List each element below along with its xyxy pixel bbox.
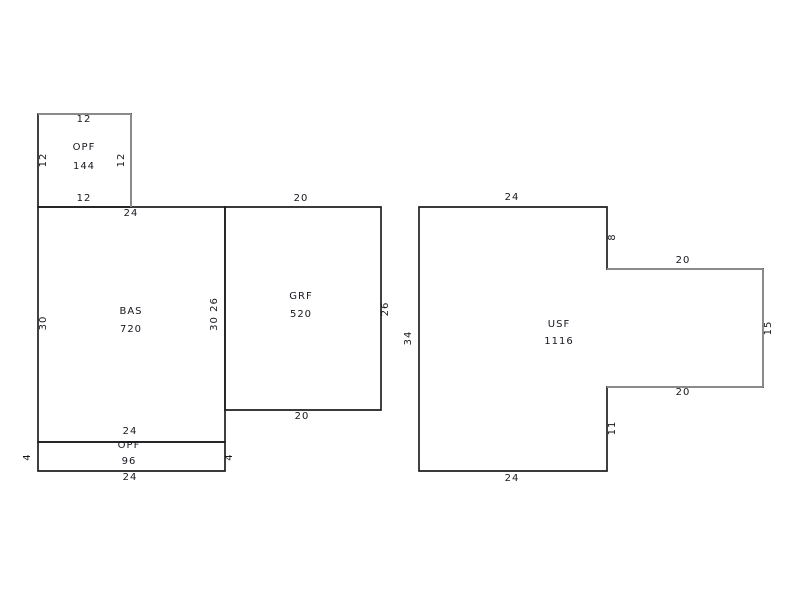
floorplan-sketch-canvas: 12OPF14412121224BAS7203030 2624OPF962444… [0, 0, 800, 600]
area-outline-bas [38, 207, 225, 442]
area-outline-opf-lower [38, 442, 225, 471]
area-outline-opf-upper [38, 114, 131, 207]
floorplan-svg [0, 0, 800, 600]
area-outline-grf [225, 207, 381, 410]
area-outline-usf [419, 207, 763, 471]
